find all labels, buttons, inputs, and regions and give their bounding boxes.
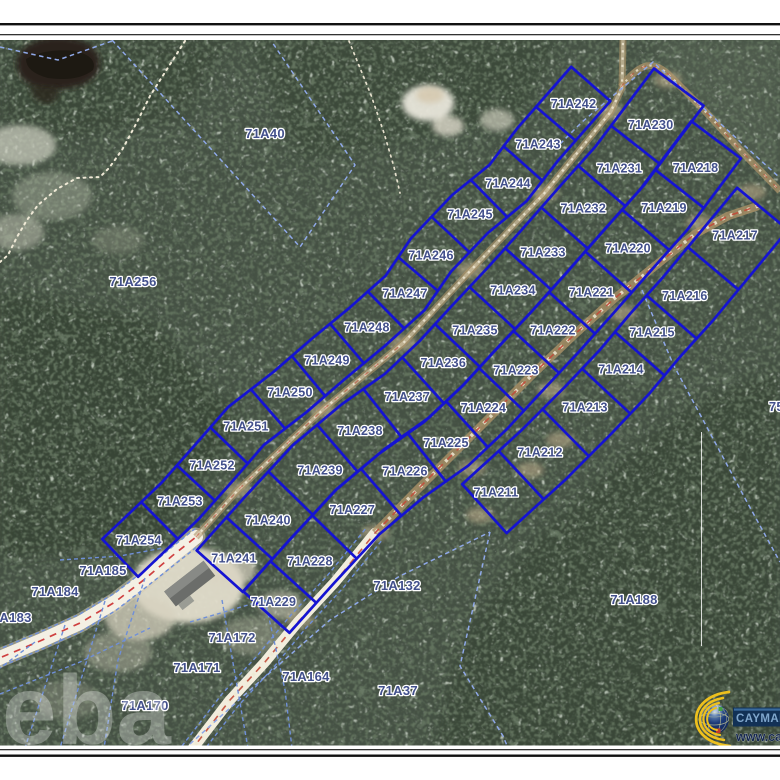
svg-text:71A219: 71A219 — [641, 201, 687, 215]
svg-text:71A217: 71A217 — [712, 228, 758, 242]
svg-text:71A241: 71A241 — [211, 552, 257, 566]
svg-text:71A236: 71A236 — [421, 356, 467, 370]
svg-text:71A232: 71A232 — [561, 202, 607, 216]
svg-text:71A171: 71A171 — [173, 660, 220, 675]
svg-text:www.caym: www.caym — [735, 730, 780, 744]
svg-text:71A243: 71A243 — [515, 138, 561, 152]
svg-text:71A245: 71A245 — [447, 208, 493, 222]
svg-text:71A214: 71A214 — [598, 363, 644, 377]
svg-text:71A238: 71A238 — [337, 424, 383, 438]
svg-text:71A185: 71A185 — [79, 563, 126, 578]
svg-text:71A184: 71A184 — [31, 584, 79, 599]
svg-text:71A250: 71A250 — [267, 386, 313, 400]
svg-text:71A230: 71A230 — [628, 118, 674, 132]
svg-text:71A252: 71A252 — [189, 459, 235, 473]
svg-text:71A249: 71A249 — [304, 354, 350, 368]
svg-text:71A253: 71A253 — [157, 495, 203, 509]
svg-text:71A188: 71A188 — [610, 592, 657, 607]
svg-text:71A212: 71A212 — [517, 446, 563, 460]
svg-text:71A256: 71A256 — [109, 274, 156, 289]
svg-text:71A237: 71A237 — [385, 390, 431, 404]
svg-text:71A251: 71A251 — [223, 420, 269, 434]
svg-text:71A222: 71A222 — [530, 324, 576, 338]
svg-text:71A220: 71A220 — [605, 242, 651, 256]
svg-text:71A37: 71A37 — [378, 683, 418, 698]
svg-text:71A183: 71A183 — [0, 610, 32, 625]
svg-text:71A254: 71A254 — [116, 534, 162, 548]
svg-text:71A215: 71A215 — [629, 326, 675, 340]
svg-text:71A240: 71A240 — [245, 514, 291, 528]
svg-text:71A227: 71A227 — [330, 503, 376, 517]
svg-text:71A239: 71A239 — [297, 464, 343, 478]
svg-text:71A242: 71A242 — [551, 97, 597, 111]
svg-text:71A226: 71A226 — [382, 465, 428, 479]
svg-text:71A164: 71A164 — [282, 669, 330, 684]
svg-text:71A235: 71A235 — [452, 324, 498, 338]
svg-text:71A221: 71A221 — [569, 286, 615, 300]
svg-text:71A246: 71A246 — [408, 249, 454, 263]
svg-text:71A213: 71A213 — [562, 401, 608, 415]
svg-text:71A234: 71A234 — [490, 284, 536, 298]
svg-text:71A228: 71A228 — [287, 555, 333, 569]
svg-text:71A40: 71A40 — [245, 126, 285, 141]
svg-text:71A218: 71A218 — [673, 161, 719, 175]
svg-text:71A216: 71A216 — [662, 289, 708, 303]
svg-text:71A223: 71A223 — [493, 364, 539, 378]
svg-text:CAYMAN: CAYMAN — [736, 713, 780, 725]
svg-text:71A172: 71A172 — [208, 630, 255, 645]
svg-text:71A132: 71A132 — [373, 578, 420, 593]
svg-text:71A229: 71A229 — [251, 595, 297, 609]
svg-text:71A244: 71A244 — [485, 177, 531, 191]
svg-text:71A231: 71A231 — [597, 161, 643, 175]
svg-text:71A233: 71A233 — [520, 245, 566, 259]
svg-text:71A211: 71A211 — [474, 486, 519, 500]
svg-text:75B1: 75B1 — [769, 399, 780, 414]
svg-text:71A225: 71A225 — [423, 436, 469, 450]
svg-text:71A247: 71A247 — [382, 287, 428, 301]
svg-text:71A248: 71A248 — [344, 321, 390, 335]
svg-text:71A224: 71A224 — [461, 401, 507, 415]
